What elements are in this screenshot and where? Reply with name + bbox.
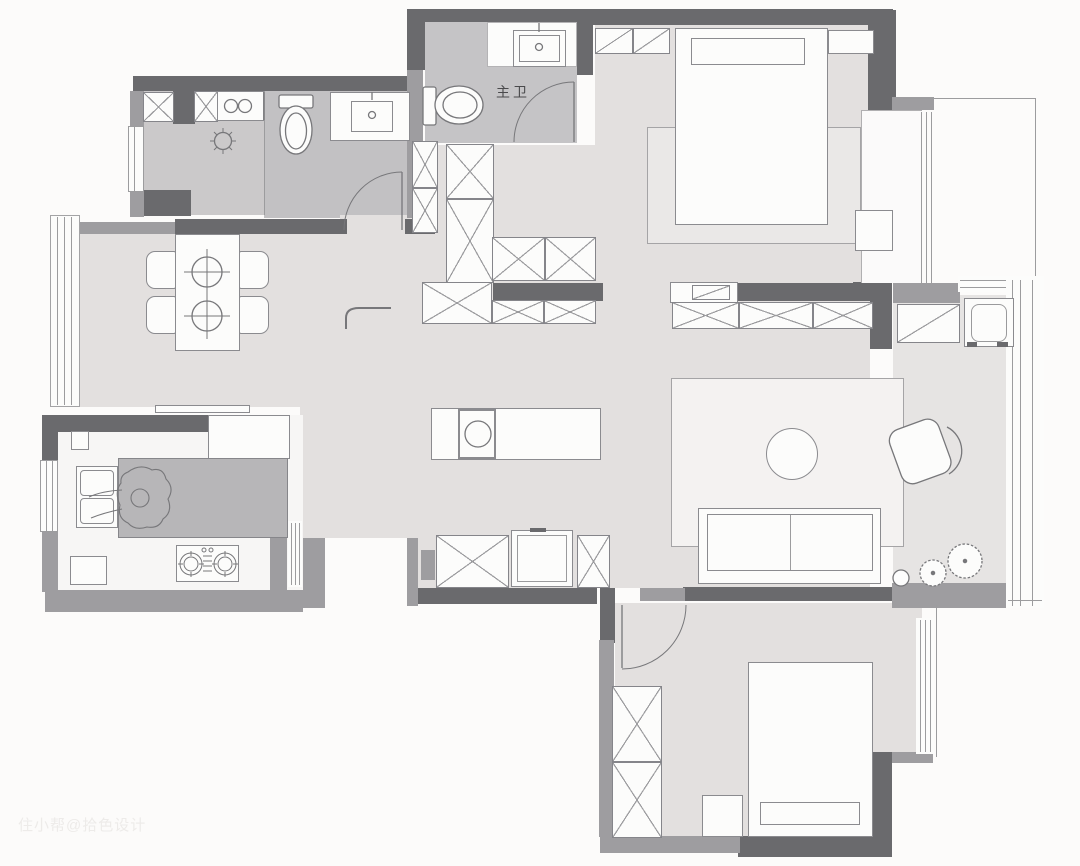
wall — [175, 219, 347, 234]
window-line — [930, 620, 931, 752]
dining-chair — [239, 251, 269, 289]
kitchen-island-table — [118, 458, 288, 538]
cabinet-x — [492, 300, 544, 324]
nightstand — [702, 795, 743, 837]
wall — [600, 836, 740, 853]
wall — [407, 22, 425, 70]
wall — [45, 590, 303, 612]
window-line — [71, 217, 72, 405]
wall — [130, 190, 144, 217]
floor-plan: 主卫 住小帮@拾色设计 — [0, 0, 1080, 866]
window-line — [64, 217, 65, 405]
washer-drum — [971, 304, 1007, 342]
wall — [407, 538, 418, 606]
window-line — [46, 461, 47, 531]
washer-foot — [997, 342, 1008, 347]
tv-cabinet-x — [813, 302, 873, 329]
window-line — [925, 620, 926, 752]
window-line — [134, 127, 135, 191]
washer-foot — [967, 342, 977, 347]
window-line — [291, 523, 292, 585]
cabinet-x — [194, 91, 218, 122]
wall — [640, 588, 685, 601]
wall — [407, 9, 593, 22]
window-line — [931, 112, 932, 283]
wall — [53, 415, 210, 432]
kitchen-cabinet — [70, 556, 107, 585]
wall — [303, 538, 325, 608]
window-laundry — [128, 126, 144, 192]
boundary-line — [936, 605, 937, 757]
island-sink-unit — [458, 409, 496, 459]
cabinet-x — [436, 535, 509, 588]
fridge-inner — [517, 535, 567, 582]
cabinet-x — [422, 282, 492, 324]
window-dining — [50, 215, 80, 407]
cabinet-x — [544, 300, 596, 324]
kitchen-sink-bowl — [80, 470, 114, 496]
partition-line — [264, 91, 265, 215]
sink-guest — [351, 101, 393, 132]
balcony-cabinet — [897, 304, 960, 343]
dining-chair — [146, 251, 176, 289]
bed-pillow — [691, 38, 805, 65]
wardrobe-x — [446, 144, 494, 199]
window-line — [1008, 600, 1042, 601]
wall — [893, 283, 960, 303]
window-line — [1032, 280, 1033, 606]
nightstand — [828, 30, 874, 54]
wall — [78, 222, 175, 234]
boundary-line — [1035, 98, 1036, 278]
dining-chair — [146, 296, 176, 334]
sofa-divider — [790, 515, 791, 570]
washer-counter — [217, 91, 264, 121]
window-kitchen — [40, 460, 58, 532]
sink-master — [519, 35, 560, 62]
wardrobe-x — [612, 686, 662, 762]
wall — [600, 588, 615, 643]
wall — [415, 588, 597, 604]
tv-panel — [692, 285, 730, 300]
wardrobe-x — [446, 199, 494, 283]
window-line — [921, 112, 922, 283]
dining-table — [175, 234, 240, 351]
window-line — [1020, 280, 1021, 606]
wardrobe-diagonal — [633, 28, 670, 54]
boundary-line — [903, 98, 1035, 99]
kitchen-sink-bowl — [80, 498, 114, 524]
wardrobe-diagonal — [595, 28, 633, 54]
fridge-hinge — [530, 528, 546, 532]
wall — [870, 283, 892, 349]
window-line — [920, 620, 921, 752]
dining-chair — [239, 296, 269, 334]
wardrobe-x — [612, 762, 662, 838]
wall — [270, 538, 287, 606]
island-counter — [431, 408, 601, 460]
fixture-box — [71, 431, 89, 450]
bed-pillow — [760, 802, 860, 825]
window-line — [299, 523, 300, 585]
nightstand — [855, 210, 893, 251]
wall — [42, 415, 58, 462]
wall — [593, 9, 893, 25]
cabinet-x — [412, 141, 438, 188]
wall — [738, 836, 892, 857]
cabinet-x — [545, 237, 596, 281]
wall — [173, 78, 195, 124]
wall — [421, 550, 435, 580]
window-line — [57, 217, 58, 405]
room-label-master-bath: 主卫 — [496, 82, 530, 102]
console-shelf — [155, 405, 250, 413]
cabinet-x — [577, 535, 610, 588]
cabinet-x — [143, 92, 174, 122]
wall — [493, 283, 603, 301]
window-line — [295, 523, 296, 585]
watermark: 住小帮@拾色设计 — [18, 814, 146, 835]
window-line — [926, 112, 927, 283]
wall — [577, 9, 593, 75]
coffee-table — [766, 428, 818, 480]
cabinet-x — [492, 237, 545, 281]
tv-cabinet-x — [672, 302, 739, 329]
bay-window-master — [861, 110, 922, 283]
tv-cabinet-x — [739, 302, 813, 329]
outside-notch — [325, 538, 407, 612]
kitchen-counter — [208, 415, 290, 459]
cabinet-x — [412, 188, 438, 233]
wall — [130, 91, 144, 127]
wall — [868, 10, 896, 110]
stove — [176, 545, 239, 582]
wall — [683, 587, 892, 601]
wall — [42, 532, 58, 592]
window-line — [52, 461, 53, 531]
